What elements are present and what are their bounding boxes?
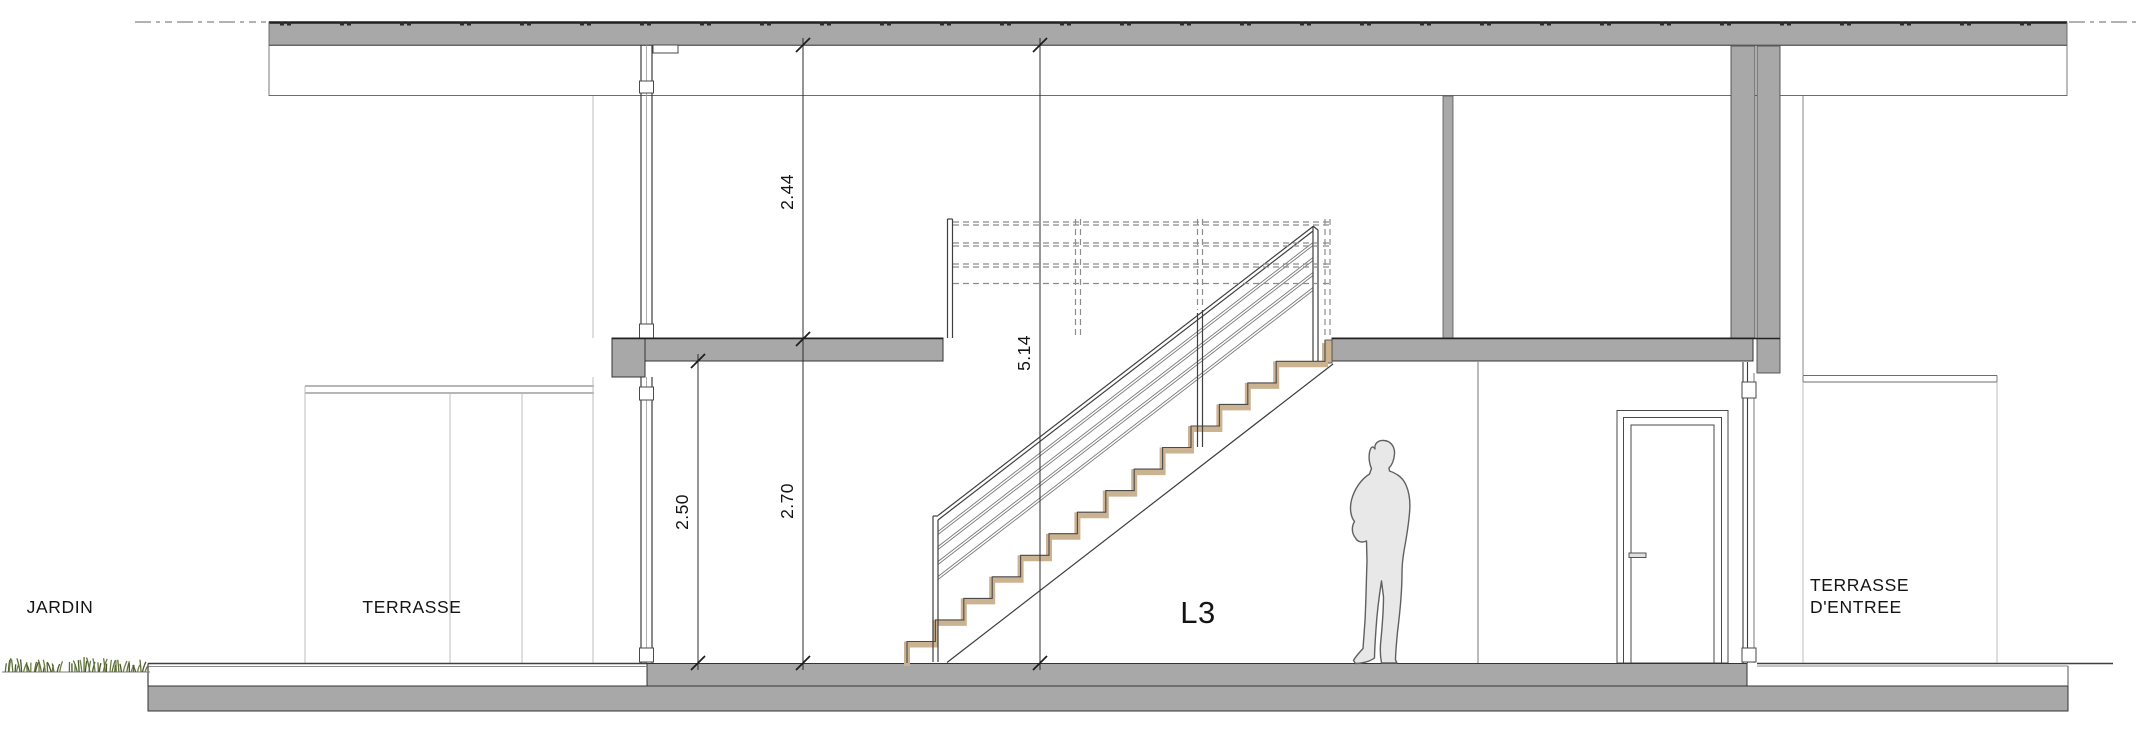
label-level: L3 (1180, 595, 1215, 630)
label-entry-terrace-line1: TERRASSE (1810, 575, 1909, 595)
stair (907, 340, 1333, 666)
label-jardin: JARDIN (27, 597, 94, 617)
right-wall-cut-upper (1731, 46, 1755, 338)
foundation-slab (148, 686, 2068, 711)
entry-glazing-head (1742, 382, 1756, 398)
right-pillar-cut (1757, 46, 1780, 373)
ceiling-recess (653, 45, 678, 53)
person-silhouette (1351, 440, 1410, 663)
upper-guardrail (948, 219, 1331, 338)
ground (2, 657, 2113, 711)
left-terrace-surface (148, 664, 647, 687)
interior-floor-slab (647, 664, 1747, 687)
roof-slab (135, 22, 2140, 96)
entry-canopy (1803, 376, 1997, 383)
handrail-top (938, 227, 1313, 516)
floor-slab-edge-beam (612, 338, 645, 377)
stair-steps-finish (907, 343, 1325, 666)
intermediate-floor-slab (612, 338, 1780, 377)
dim-upper-clear-height: 2.44 (777, 174, 797, 210)
grass-tufts (5, 657, 148, 672)
entry-elevation-panel (1803, 382, 1997, 663)
right-wall-lower (1742, 362, 1756, 663)
label-entry-terrace-line2: D'ENTREE (1810, 597, 1902, 617)
upper-wall-cut (1443, 96, 1453, 338)
lower-storey-right (1478, 362, 1997, 663)
door-handle (1629, 553, 1646, 558)
upper-window-mullion (640, 45, 654, 338)
roof-slab-cut (269, 22, 2067, 45)
dim-lower-clear-height: 2.50 (672, 494, 692, 530)
terrace-glazing-head (305, 386, 594, 393)
terrace-glazing (305, 377, 654, 663)
door-head-frame (640, 387, 654, 400)
entry-door (1617, 411, 1728, 664)
floor-slab-right (1332, 338, 1753, 361)
section-drawing: 2.44 2.70 2.50 5.14 JARDIN TERRASSE L3 T… (0, 0, 2144, 746)
dim-floor-to-floor: 2.70 (777, 483, 797, 519)
door-sill-frame (640, 648, 654, 662)
guardrail-post-cut (948, 219, 953, 338)
label-terrasse: TERRASSE (362, 597, 461, 617)
window-sill (640, 324, 654, 338)
floor-slab-left (612, 338, 943, 361)
dim-total-height: 5.14 (1014, 335, 1034, 371)
door-leaf (1631, 425, 1714, 663)
dimension-line-2-50: 2.50 (672, 354, 705, 670)
section-drawing-canvas: 2.44 2.70 2.50 5.14 JARDIN TERRASSE L3 T… (0, 0, 2144, 746)
entry-glazing-sill (1742, 648, 1756, 662)
lower-window-mullion (640, 377, 654, 663)
entry-terrace-surface (1757, 664, 2113, 687)
window-transom (640, 81, 654, 93)
